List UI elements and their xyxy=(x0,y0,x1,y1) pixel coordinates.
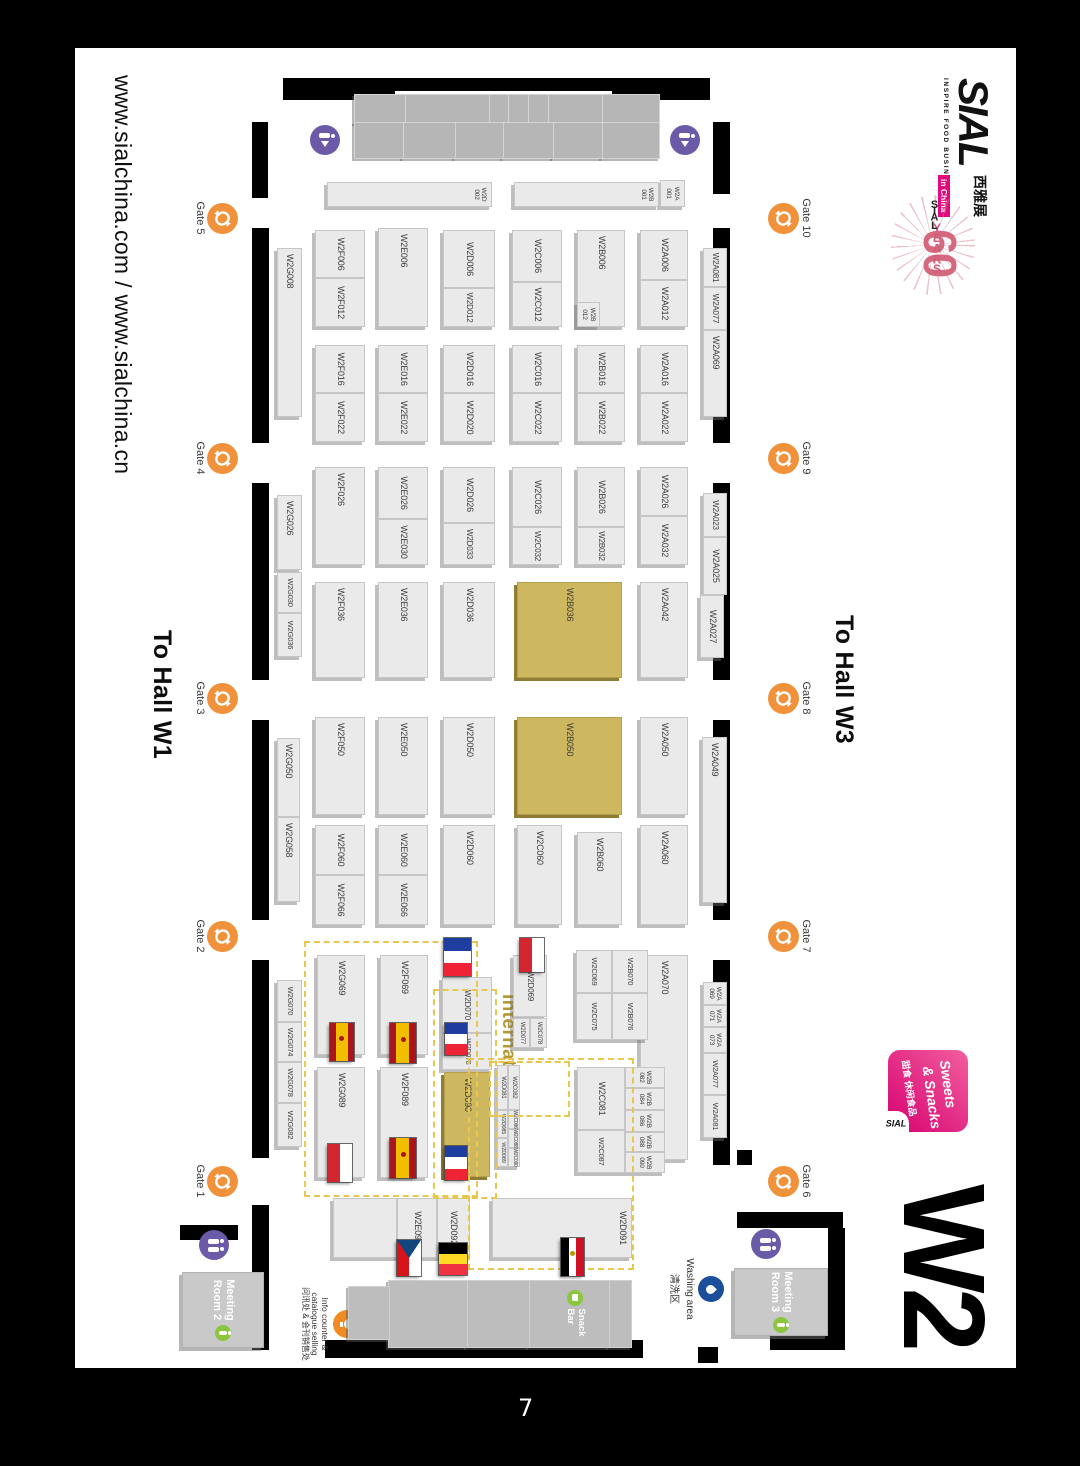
60-years-sial: SIAL xyxy=(929,201,941,230)
france-flag-icon xyxy=(445,1023,467,1055)
gate-label: Gate 4 xyxy=(194,436,206,480)
poland-flag-icon xyxy=(520,938,544,972)
hall-w2-title: W2 xyxy=(886,1184,1002,1346)
wall xyxy=(252,483,269,680)
gate-label: Gate 2 xyxy=(194,914,206,958)
snack-bar-block xyxy=(388,1280,468,1348)
snack-bar-block xyxy=(348,1286,390,1340)
booth-W2G070: W2G070 xyxy=(277,980,302,1022)
booth-W2A069: W2A069 xyxy=(703,330,727,417)
snack-bar-icon xyxy=(567,1290,583,1306)
booth-W2A071: W2A 071 xyxy=(703,1005,727,1027)
gate-3: Gate 3 xyxy=(194,676,238,720)
booth-W2D020: W2D020 xyxy=(443,393,495,442)
booth-W2F050: W2F050 xyxy=(315,717,365,815)
booth-W2G050: W2G050 xyxy=(277,738,300,817)
czech-flag-icon xyxy=(397,1240,421,1276)
service-block xyxy=(404,94,490,124)
to-hall-w1-label: To Hall W1 xyxy=(147,630,176,759)
booth-W2D006: W2D006 xyxy=(443,230,495,288)
gate-label: Gate 10 xyxy=(800,196,812,240)
booth-W2F016: W2F016 xyxy=(315,345,365,393)
booth-W2C022: W2C022 xyxy=(512,393,562,442)
info-counter-label-cn: 问讯处 & 会刊销售处 xyxy=(300,1287,310,1361)
booth-W2A001: W2A 001 xyxy=(660,180,685,207)
wall xyxy=(698,1347,718,1363)
info-counter-label-2: catalogue selling xyxy=(310,1292,320,1355)
booth-W2C078: W2C078 xyxy=(530,1018,547,1048)
booth-W2D077: W2D077 xyxy=(513,1018,530,1048)
meeting-room-icon xyxy=(215,1325,231,1341)
gate-icon xyxy=(207,683,238,714)
booth-W2F012: W2F012 xyxy=(315,278,365,327)
meeting-room-icon xyxy=(773,1317,789,1333)
service-block xyxy=(354,122,404,159)
gate-label: Gate 6 xyxy=(800,1159,812,1203)
booth-W2F026: W2F026 xyxy=(315,467,365,565)
booth-W2A006: W2A006 xyxy=(640,230,688,280)
entrance-person-icon xyxy=(670,125,700,155)
gate-icon xyxy=(768,443,799,474)
france-flag-icon xyxy=(444,938,471,976)
gate-10: Gate 10 xyxy=(768,196,812,240)
restroom-icon xyxy=(751,1229,781,1259)
wall xyxy=(252,122,268,198)
booth-W2A077: W2A077 xyxy=(703,287,727,330)
gate-7: Gate 7 xyxy=(768,914,812,958)
booth-W2E050: W2E050 xyxy=(378,717,428,815)
booth-W2B032: W2B032 xyxy=(577,527,625,565)
booth-W2B070: W2B070 xyxy=(612,950,648,993)
entrance-person-icon xyxy=(310,125,340,155)
sweets-sial-notch: SIAL xyxy=(884,1111,909,1136)
booth-W2F066: W2F066 xyxy=(315,875,365,925)
service-block xyxy=(547,94,603,124)
sial-60-years-logo: 60 YEARS SIAL xyxy=(891,195,975,295)
booth-W2G030: W2G030 xyxy=(277,572,302,613)
booth-W2C069: W2C069 xyxy=(576,950,612,993)
booth-W2E066: W2E066 xyxy=(378,875,428,925)
belgium-flag-icon xyxy=(439,1243,467,1275)
booth-W2B050: W2B050 xyxy=(517,717,622,815)
egypt-flag-icon xyxy=(561,1238,584,1276)
international-area-boundary xyxy=(468,1058,634,1270)
booth-W2G078: W2G078 xyxy=(277,1062,302,1103)
booth-W2A081: W2A081 xyxy=(703,248,727,287)
gate-4: Gate 4 xyxy=(194,436,238,480)
booth-W2E030: W2E030 xyxy=(378,519,428,565)
service-block xyxy=(527,94,549,124)
booth-unlabeled xyxy=(333,1198,397,1258)
booth-W2B026: W2B026 xyxy=(577,467,625,527)
booth-W2F036: W2F036 xyxy=(315,582,365,678)
page-number: 7 xyxy=(518,1394,533,1422)
poland-flag-icon xyxy=(328,1144,352,1182)
booth-W2E036: W2E036 xyxy=(378,582,428,678)
booth-W2C026: W2C026 xyxy=(512,467,562,527)
booth-W2C006: W2C006 xyxy=(512,230,562,282)
service-block xyxy=(552,122,603,159)
booth-W2C075: W2C075 xyxy=(576,993,612,1040)
gate-icon xyxy=(768,683,799,714)
booth-W2B036: W2B036 xyxy=(517,582,622,678)
booth-W2G036: W2G036 xyxy=(277,613,302,657)
booth-W2D016: W2D016 xyxy=(443,345,495,393)
booth-W2B022: W2B022 xyxy=(577,393,625,442)
sweets-chinese: 甜食 休闲食品 xyxy=(899,1059,920,1117)
gate-label: Gate 8 xyxy=(800,676,812,720)
service-block xyxy=(601,122,660,159)
service-block xyxy=(454,122,504,159)
wall xyxy=(737,1212,843,1228)
booth-W2G008: W2G008 xyxy=(277,248,302,417)
booth-W2A022: W2A022 xyxy=(640,393,688,442)
gate-5: Gate 5 xyxy=(194,196,238,240)
booth-W2D012: W2D012 xyxy=(443,288,495,327)
booth-W2A025: W2A025 xyxy=(703,537,727,595)
wall xyxy=(828,1228,845,1350)
gate-label: Gate 3 xyxy=(194,676,206,720)
info-counter-label-1: Info counter & xyxy=(320,1298,330,1351)
booth-W2A042: W2A042 xyxy=(640,582,688,678)
booth-W2A012: W2A012 xyxy=(640,280,688,327)
service-block xyxy=(601,94,660,124)
meeting-room-3: Meeting Room 3 xyxy=(734,1268,828,1336)
gate-6: Gate 6 xyxy=(768,1159,812,1203)
booth-W2B060: W2B060 xyxy=(577,832,622,925)
booth-W2F006: W2F006 xyxy=(315,230,365,278)
service-block xyxy=(507,94,529,124)
gate-icon xyxy=(768,203,799,234)
gate-label: Gate 1 xyxy=(194,1159,206,1203)
to-hall-w3-label: To Hall W3 xyxy=(829,615,858,744)
gate-icon xyxy=(207,921,238,952)
booth-W2B001: W2B 001 xyxy=(514,182,659,207)
meeting-room-2-label: Meeting Room 2 xyxy=(210,1279,235,1321)
meeting-room-3-label: Meeting Room 3 xyxy=(768,1271,793,1313)
meeting-room-2: Meeting Room 2 xyxy=(182,1272,264,1348)
gate-icon xyxy=(207,443,238,474)
booth-W2D026: W2D026 xyxy=(443,467,495,523)
snack-bar-label: Snack Bar xyxy=(564,1309,586,1337)
booth-W2A050: W2A050 xyxy=(640,717,688,815)
booth-W2E026: W2E026 xyxy=(378,467,428,519)
booth-W2G074: W2G074 xyxy=(277,1022,302,1062)
booth-W2D050: W2D050 xyxy=(443,717,495,815)
gate-icon xyxy=(207,1166,238,1197)
wall xyxy=(395,78,612,91)
restroom-icon xyxy=(199,1230,229,1260)
booth-W2E006: W2E006 xyxy=(378,228,428,327)
gate-2: Gate 2 xyxy=(194,914,238,958)
booth-W2C060: W2C060 xyxy=(517,825,562,925)
spain-flag-icon xyxy=(330,1023,354,1061)
booth-W2A027: W2A027 xyxy=(700,595,724,658)
booth-W2C016: W2C016 xyxy=(512,345,562,393)
service-block xyxy=(354,94,406,124)
booth-W2G082: W2G082 xyxy=(277,1103,302,1147)
booth-W2A069: W2A 069 xyxy=(703,982,727,1005)
snack-bar-block xyxy=(466,1280,530,1348)
booth-W2F060: W2F060 xyxy=(315,825,365,875)
service-block xyxy=(488,94,509,124)
water-drop-icon xyxy=(698,1276,724,1302)
booth-W2B012: W2B 012 xyxy=(577,302,600,327)
wall xyxy=(252,960,269,1158)
spain-flag-icon xyxy=(390,1023,416,1063)
wall xyxy=(737,1150,752,1165)
booth-W2D060: W2D060 xyxy=(443,825,495,925)
snack-bar-block xyxy=(608,1280,632,1348)
booth-W2G026: W2G026 xyxy=(277,495,302,570)
wall xyxy=(713,122,730,194)
booth-W2B016: W2B016 xyxy=(577,345,625,393)
booth-W2D036: W2D036 xyxy=(443,582,495,678)
wall xyxy=(770,1334,828,1350)
booth-W2B076: W2B076 xyxy=(612,993,648,1040)
france-flag-icon xyxy=(445,1146,467,1180)
booth-W2A049: W2A049 xyxy=(702,737,727,903)
booth-W2F022: W2F022 xyxy=(315,393,365,442)
booth-W2A016: W2A016 xyxy=(640,345,688,393)
booth-W2G058: W2G058 xyxy=(277,817,300,902)
gate-icon xyxy=(207,203,238,234)
gate-9: Gate 9 xyxy=(768,436,812,480)
gate-label: Gate 7 xyxy=(800,914,812,958)
gate-label: Gate 5 xyxy=(194,196,206,240)
gate-label: Gate 9 xyxy=(800,436,812,480)
snack-bar: Snack Bar xyxy=(564,1282,586,1344)
booth-W2D002: W2D 002 xyxy=(327,182,492,207)
spain-flag-icon xyxy=(390,1138,416,1178)
booth-W2E016: W2E016 xyxy=(378,345,428,393)
booth-W2D033: W2D033 xyxy=(443,523,495,565)
booth-W2E022: W2E022 xyxy=(378,393,428,442)
booth-W2A023: W2A023 xyxy=(703,493,727,537)
booth-W2A032: W2A032 xyxy=(640,516,688,565)
booth-W2E060: W2E060 xyxy=(378,825,428,875)
gate-8: Gate 8 xyxy=(768,676,812,720)
booth-W2A081: W2A081 xyxy=(703,1095,727,1138)
sweets-snacks-logo: Sweets & Snacks 甜食 休闲食品 SIAL xyxy=(888,1050,968,1132)
washing-area-label-cn: 清洗区 xyxy=(668,1274,683,1304)
booth-W2A060: W2A060 xyxy=(640,825,688,925)
booth-W2C012: W2C012 xyxy=(512,282,562,327)
booth-W2A077: W2A077 xyxy=(703,1053,727,1095)
wall xyxy=(252,720,269,920)
floorplan-stage: SIAL INSPIRE FOOD BUSINESS 西雅展 in China … xyxy=(75,48,1016,1368)
booth-W2C032: W2C032 xyxy=(512,527,562,565)
gate-icon xyxy=(768,1166,799,1197)
booth-W2A073: W2A 073 xyxy=(703,1027,727,1053)
gate-icon xyxy=(768,921,799,952)
website-urls: www.sialchina.com / www.sialchina.cn xyxy=(109,75,136,474)
service-block xyxy=(402,122,456,159)
service-block xyxy=(502,122,554,159)
washing-area-label: Washing area xyxy=(684,1258,695,1319)
booth-W2A026: W2A026 xyxy=(640,467,688,516)
wall xyxy=(252,228,269,443)
washing-area: Washing area 清洗区 xyxy=(646,1246,724,1332)
gate-1: Gate 1 xyxy=(194,1159,238,1203)
